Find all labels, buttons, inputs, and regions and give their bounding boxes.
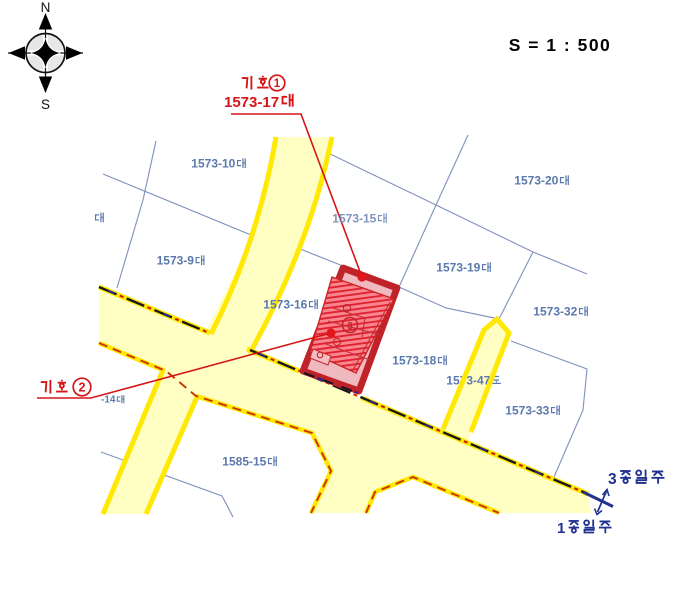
svg-text:1573-9: 1573-9 — [157, 253, 195, 267]
svg-text:1573-19: 1573-19 — [436, 260, 480, 274]
svg-text:1573-47: 1573-47 — [446, 373, 490, 387]
svg-text:1573-32: 1573-32 — [533, 304, 577, 318]
svg-text:N: N — [41, 0, 51, 15]
svg-text:3: 3 — [347, 321, 353, 332]
svg-text:1: 1 — [274, 78, 281, 90]
svg-text:1573-15: 1573-15 — [332, 211, 376, 225]
svg-text:S: S — [41, 97, 50, 112]
svg-text:3: 3 — [608, 471, 617, 488]
svg-text:1585-15: 1585-15 — [222, 454, 266, 468]
svg-text:1573-17: 1573-17 — [224, 94, 279, 111]
svg-text:-14: -14 — [101, 395, 116, 406]
svg-text:1573-33: 1573-33 — [505, 403, 549, 417]
svg-text:1573-10: 1573-10 — [191, 156, 235, 170]
svg-text:2: 2 — [79, 381, 86, 395]
svg-text:1573-16: 1573-16 — [263, 297, 307, 311]
svg-text:S = 1 : 500: S = 1 : 500 — [509, 35, 612, 55]
svg-text:1573-18: 1573-18 — [392, 353, 436, 367]
svg-text:1: 1 — [557, 520, 565, 537]
svg-text:1573-20: 1573-20 — [514, 173, 558, 187]
